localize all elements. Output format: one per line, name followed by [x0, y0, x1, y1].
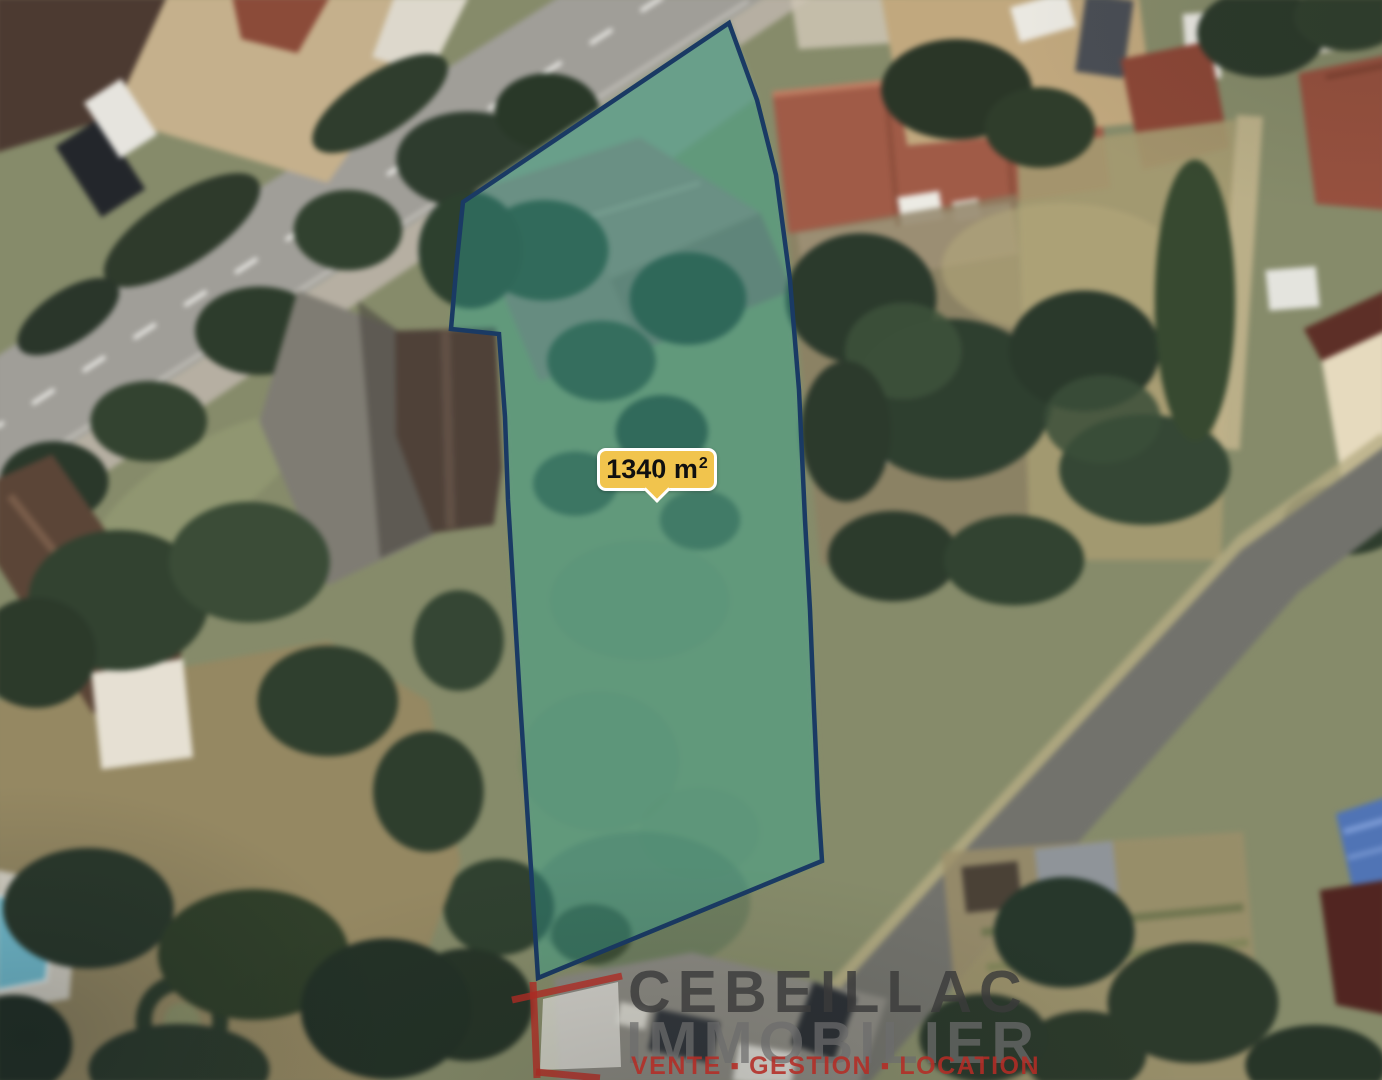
satellite-map-view[interactable]: 1340 m2 CEBEILLAC IMMOBILIER VENTE ▪ GES…: [0, 0, 1382, 1080]
brand-tagline: VENTE ▪ GESTION ▪ LOCATION: [631, 1054, 1040, 1079]
area-superscript: 2: [699, 456, 708, 472]
bottom-left-area: [0, 454, 504, 1080]
area-value: 1340 m: [606, 456, 698, 483]
area-label: 1340 m2: [597, 448, 717, 491]
aerial-imagery: [0, 0, 1382, 1080]
